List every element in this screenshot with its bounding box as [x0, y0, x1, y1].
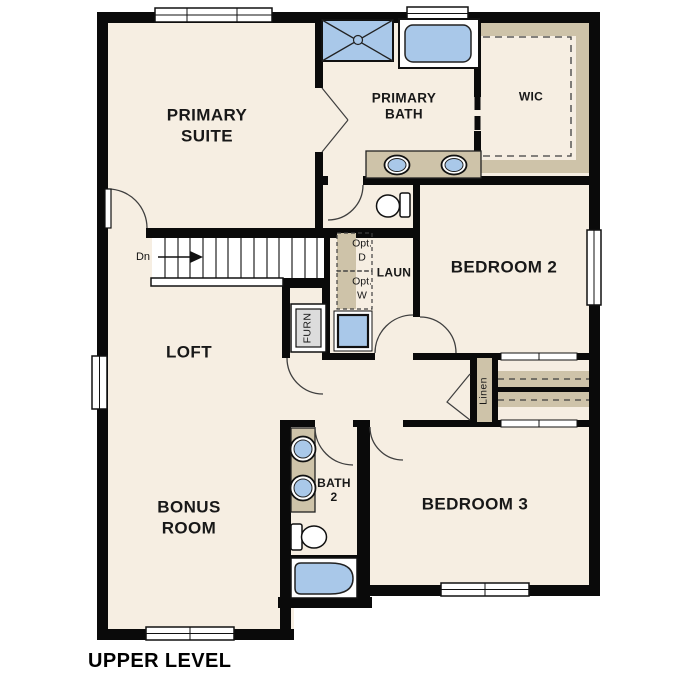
room-label-bath2: BATH 2 — [317, 477, 351, 505]
bathtub-primary — [399, 19, 479, 68]
wall-bedroom2-west — [413, 176, 420, 317]
wall-hall-south-2 — [353, 420, 370, 427]
wall-exterior-left — [97, 12, 108, 640]
room-label-laundry: LAUN — [377, 266, 412, 281]
wall-bath-wc-stub — [322, 176, 328, 185]
plan-title: UPPER LEVEL — [88, 650, 231, 673]
floor-plan-canvas: PRIMARY SUITE PRIMARY BATH WIC BEDROOM 2… — [0, 0, 687, 687]
toilet-bath2 — [291, 524, 327, 550]
window-bedroom2 — [587, 230, 601, 305]
wall-bedroom2-south-east — [577, 353, 600, 360]
shower — [322, 20, 393, 61]
wall-furnace-top — [282, 278, 330, 288]
laundry-sink — [334, 311, 372, 351]
wall-wic-bottom — [474, 176, 600, 185]
wall-furnace-west — [282, 280, 290, 358]
window-loft — [92, 356, 107, 409]
window-bonus-room — [146, 627, 234, 640]
bathtub-bath2 — [291, 558, 357, 598]
wic-shelf-top — [481, 23, 589, 36]
room-label-wic: WIC — [519, 90, 543, 105]
wall-laundry-south — [322, 353, 375, 360]
room-label-furnace: FURN — [302, 313, 315, 344]
room-label-line: BATH — [372, 107, 437, 123]
wic-shelf-bottom — [481, 160, 576, 173]
room-label-line: 2 — [317, 491, 351, 505]
stairs-landing-edge — [151, 278, 283, 286]
bedroom3-closet-bypass-doors — [501, 420, 577, 427]
floor-plan-drawing — [0, 0, 687, 687]
window-bedroom3 — [441, 583, 529, 596]
wall-linen-east — [492, 353, 498, 427]
wall-bath2-left — [280, 420, 291, 640]
annotation-line: Opt. — [352, 237, 372, 251]
wall-hall-south-1 — [282, 420, 315, 427]
annotation-optional-washer: Opt. W — [352, 275, 372, 302]
room-label-line: PRIMARY — [167, 105, 248, 126]
wall-bath2-right — [357, 420, 370, 608]
annotation-line: Opt. — [352, 275, 372, 289]
annotation-stair-direction: Dn — [136, 251, 150, 263]
wall-closet-divider — [498, 387, 589, 392]
room-label-line: SUITE — [167, 126, 248, 147]
room-label-line: ROOM — [157, 518, 220, 539]
vanity-primary-bath — [366, 151, 481, 178]
room-label-primary-bath: PRIMARY BATH — [372, 91, 437, 124]
annotation-optional-dryer: Opt. D — [352, 237, 372, 264]
wall-suite-bath-lower — [315, 152, 323, 238]
vanity-bath2 — [291, 428, 316, 512]
room-label-linen: Linen — [478, 377, 491, 405]
wic-shelf-right — [576, 23, 589, 173]
window-primary-suite — [155, 8, 272, 22]
wall-linen-west — [470, 353, 477, 427]
room-label-line: BATH — [317, 477, 351, 491]
room-label-loft: LOFT — [166, 343, 212, 364]
wall-suite-bottom — [146, 228, 420, 238]
toilet-water-closet — [377, 193, 411, 217]
annotation-line: W — [352, 289, 372, 303]
room-label-bedroom2: BEDROOM 2 — [451, 258, 558, 279]
wall-hall-south-4 — [577, 420, 600, 427]
room-label-line: PRIMARY — [372, 91, 437, 107]
room-label-line: BONUS — [157, 497, 220, 518]
room-label-primary-suite: PRIMARY SUITE — [167, 105, 248, 146]
bedroom2-closet-bypass-doors — [501, 353, 577, 360]
annotation-line: D — [352, 251, 372, 265]
room-label-bonus-room: BONUS ROOM — [157, 497, 220, 538]
room-label-bedroom3: BEDROOM 3 — [422, 495, 529, 516]
